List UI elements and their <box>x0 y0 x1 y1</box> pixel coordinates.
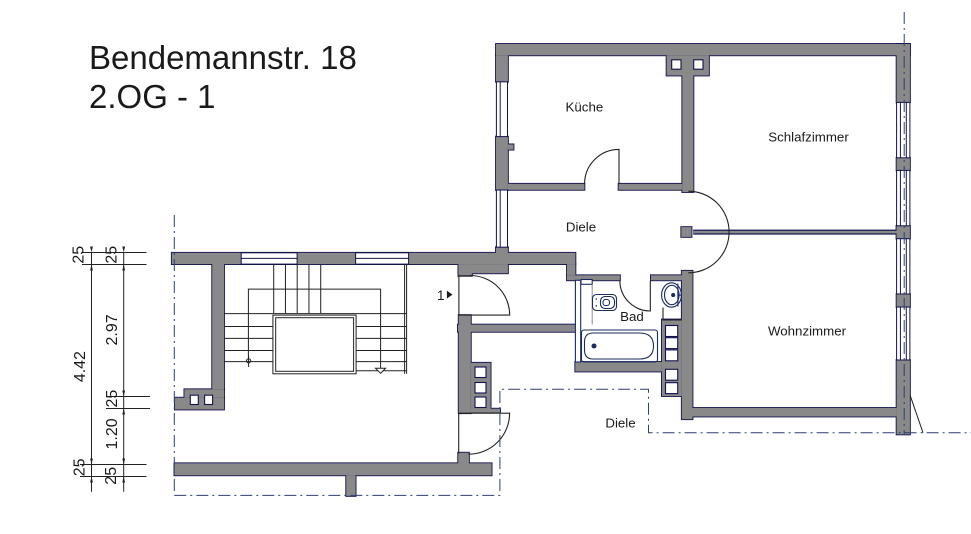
svg-text:25: 25 <box>104 390 121 408</box>
svg-text:2.97: 2.97 <box>104 314 121 345</box>
svg-text:Wohnzimmer: Wohnzimmer <box>768 324 847 339</box>
svg-text:1: 1 <box>437 288 445 303</box>
svg-text:25: 25 <box>103 246 120 264</box>
svg-text:Küche: Küche <box>566 99 604 114</box>
svg-text:4.42: 4.42 <box>72 351 89 382</box>
svg-text:Diele: Diele <box>566 220 596 235</box>
svg-text:1.20: 1.20 <box>104 418 121 449</box>
svg-text:Diele: Diele <box>605 416 635 431</box>
svg-text:2.OG - 1: 2.OG - 1 <box>89 78 216 115</box>
svg-text:Schlafzimmer: Schlafzimmer <box>768 130 849 145</box>
svg-text:25: 25 <box>103 467 120 485</box>
svg-text:Bad: Bad <box>620 309 644 324</box>
svg-text:25: 25 <box>71 246 88 264</box>
svg-text:25: 25 <box>72 458 89 476</box>
svg-text:Bendemannstr. 18: Bendemannstr. 18 <box>89 39 357 76</box>
